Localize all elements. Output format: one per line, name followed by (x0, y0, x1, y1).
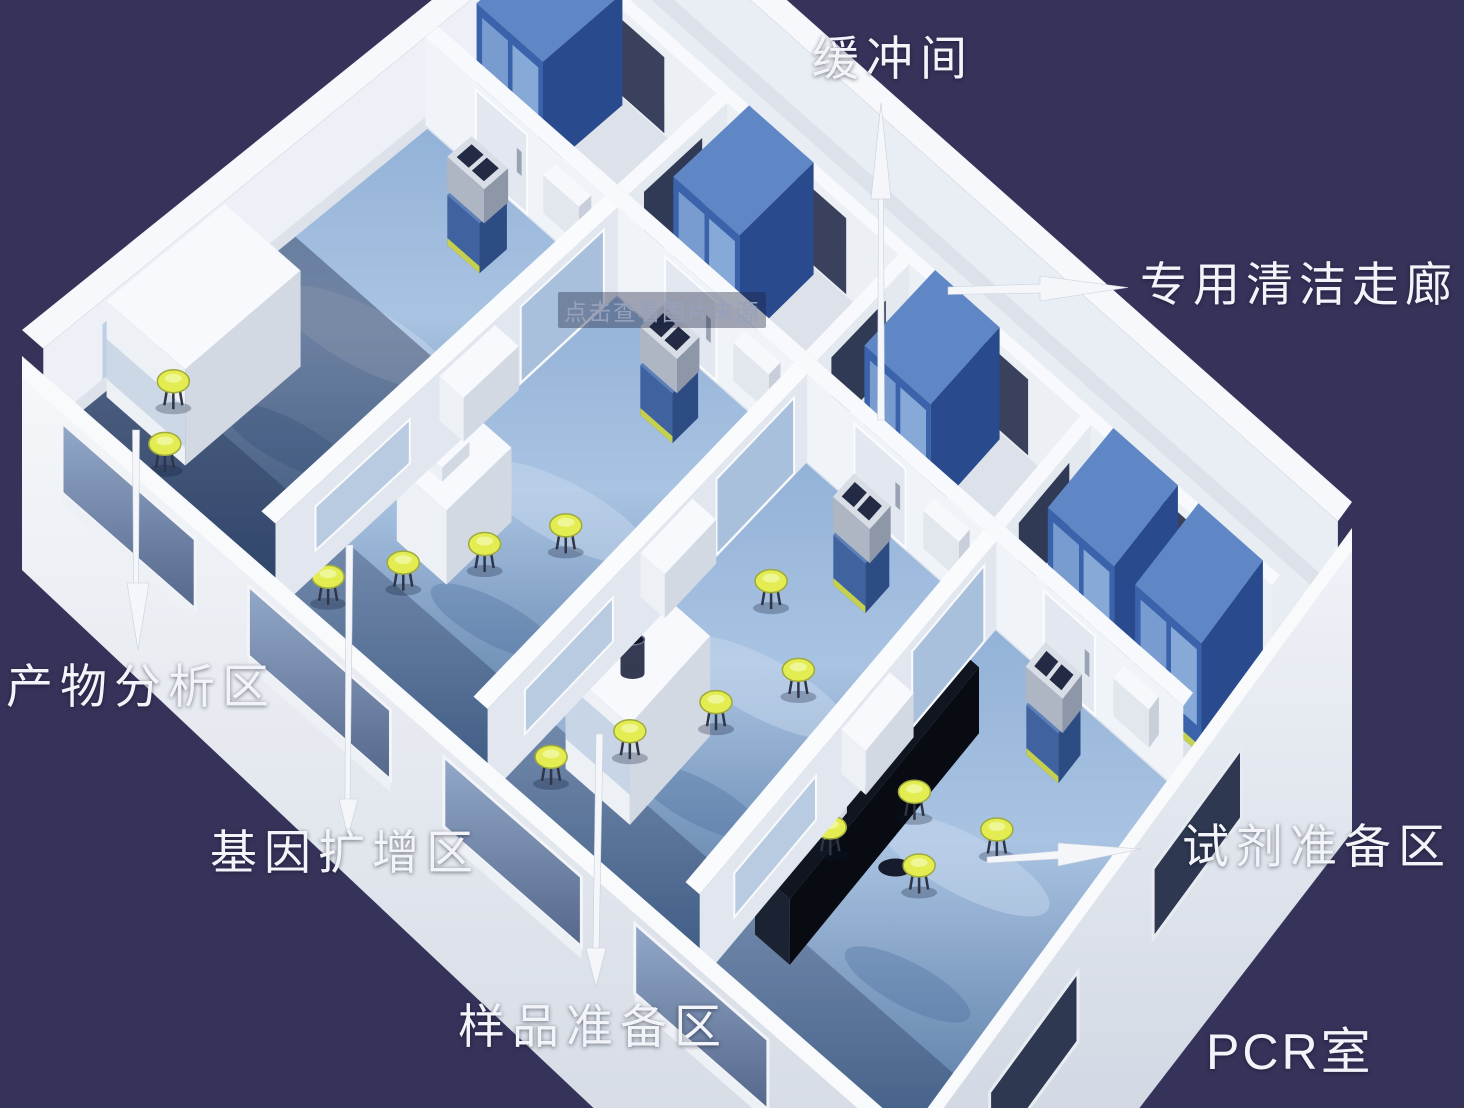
watermark-image-source-link[interactable]: 点击查看图片来源 (558, 292, 766, 328)
lab-3d-illustration (0, 0, 1464, 1108)
label-reagent-preparation: 试剂准备区 (1182, 824, 1452, 873)
label-clean-corridor: 专用清洁走廊 (1140, 262, 1458, 311)
label-buffer-room: 缓冲间 (812, 36, 974, 85)
pcr-lab-diagram: 缓冲间 专用清洁走廊 产物分析区 基因扩增区 样品准备区 试剂准备区 PCR室 … (0, 0, 1464, 1108)
label-gene-amplification: 基因扩增区 (210, 830, 480, 879)
label-sample-preparation: 样品准备区 (458, 1004, 728, 1053)
label-product-analysis: 产物分析区 (6, 664, 276, 713)
label-pcr-room: PCR室 (1206, 1026, 1374, 1079)
